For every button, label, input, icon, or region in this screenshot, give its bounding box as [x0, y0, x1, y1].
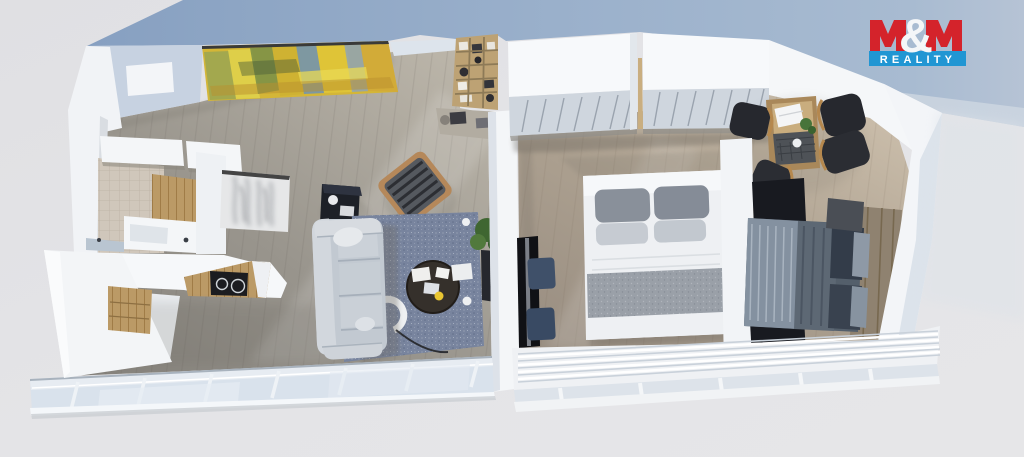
svg-text:&: & — [899, 9, 933, 62]
